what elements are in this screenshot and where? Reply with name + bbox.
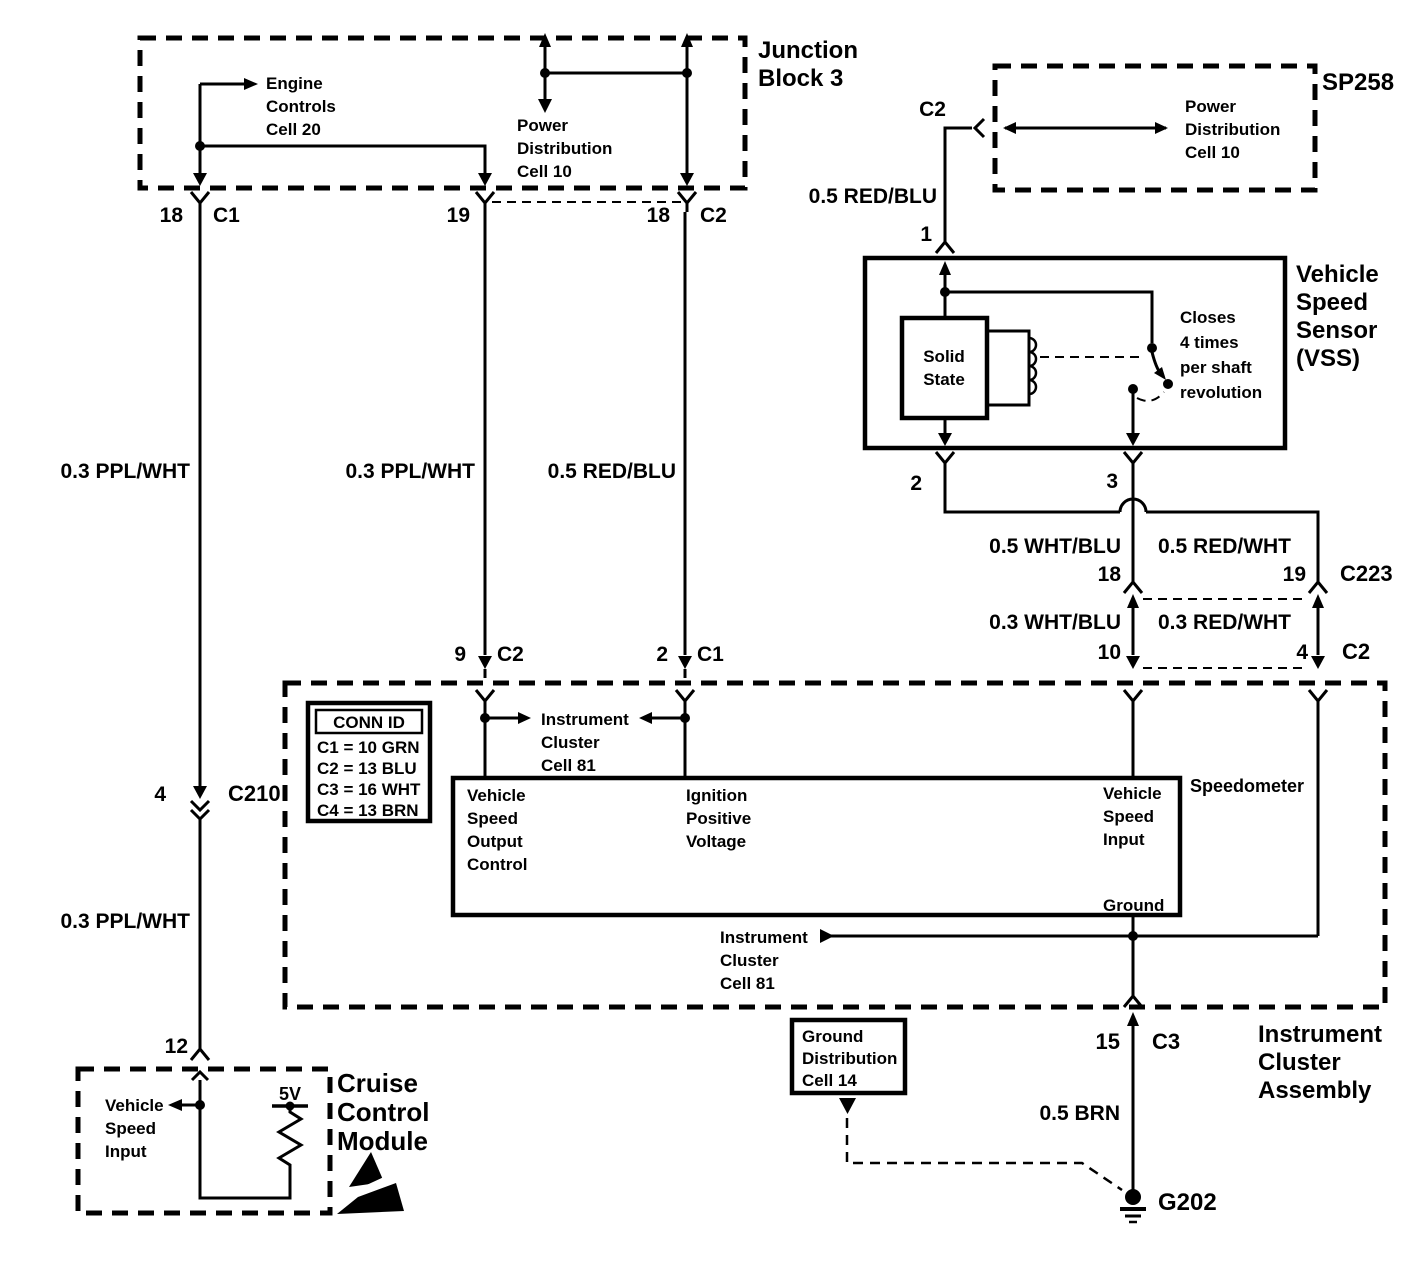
- ground-junction-dot: [1128, 931, 1138, 941]
- switch-arm-arrow-icon: [1154, 367, 1166, 380]
- jb-power-dist-ref-line1: Power: [517, 116, 568, 135]
- pin18-c1-arrow-icon: [193, 173, 207, 186]
- wiring-diagram: Junction Block 3 Engine Controls Cell 20…: [0, 0, 1427, 1275]
- closes-note-line4: revolution: [1180, 383, 1262, 402]
- esd-warning-icon: [337, 1152, 404, 1214]
- cell81-bottom-line1: Instrument: [720, 928, 808, 947]
- cruise-vsi-arrow-icon: [168, 1099, 182, 1111]
- conn-id-row-1: C1 = 10 GRN: [317, 738, 420, 757]
- resistor-icon: [279, 1106, 301, 1172]
- pin4-fork-icon: [1309, 690, 1327, 710]
- speedometer-label: Speedometer: [1190, 776, 1304, 796]
- ground-dist-line3: Cell 14: [802, 1071, 857, 1090]
- sp258-conn-c2-label: C2: [919, 98, 946, 121]
- sp258-power-dist-line2: Distribution: [1185, 120, 1280, 139]
- cruise-title-line1: Cruise: [337, 1068, 418, 1098]
- sp258-splice: SP258 C2 Power Distribution Cell 10 0.5 …: [809, 66, 1394, 253]
- vso-line3: Output: [467, 832, 523, 851]
- sp258-title: SP258: [1322, 69, 1394, 96]
- pin10-fork-icon: [1124, 690, 1142, 710]
- wire-label-wht-blu-03: 0.3 WHT/BLU: [989, 611, 1121, 634]
- pin12-lower-chevron-icon: [192, 1072, 208, 1080]
- engine-controls-arrow-icon: [244, 78, 258, 90]
- cruise-vsi-line3: Input: [105, 1142, 147, 1161]
- c210-arrow-icon: [193, 786, 207, 799]
- wire-label-brn: 0.5 BRN: [1039, 1102, 1120, 1125]
- vss-title-line4: (VSS): [1296, 345, 1360, 372]
- c210-chevrons-icon: [191, 801, 209, 828]
- vsi-line2: Speed: [1103, 807, 1154, 826]
- wire-label-red-blu-mid: 0.5 RED/BLU: [548, 460, 676, 483]
- c210-pin-4-number: 4: [154, 783, 166, 806]
- pin9-fork-icon: [476, 690, 494, 710]
- ign-line1: Ignition: [686, 786, 747, 805]
- vss-pin3-arrow-icon: [1126, 433, 1140, 446]
- ground-dist-arrow-icon: [839, 1098, 856, 1114]
- pin19-arrow-icon: [478, 173, 492, 186]
- sp258-arrow-right-icon: [1155, 122, 1168, 134]
- cluster-pin-2-number: 2: [656, 643, 668, 666]
- closes-note-line1: Closes: [1180, 308, 1236, 327]
- vss-pin1-fork-icon: [936, 242, 954, 253]
- cruise-title-line3: Module: [337, 1126, 428, 1156]
- ground-dist-dashed-path: [847, 1118, 1122, 1190]
- cruise-vsi-line1: Vehicle: [105, 1096, 164, 1115]
- conn-id-row-2: C2 = 13 BLU: [317, 759, 417, 778]
- cluster-box: [285, 683, 1385, 1007]
- ground-dist-line2: Distribution: [802, 1049, 897, 1068]
- cruise-internal-wire: [200, 1080, 290, 1198]
- cell81-top-line2: Cluster: [541, 733, 600, 752]
- jb-power-dist-ref-line2: Distribution: [517, 139, 612, 158]
- ground-dist-line1: Ground: [802, 1027, 863, 1046]
- pin-19-number: 19: [447, 204, 470, 227]
- cluster-title-line3: Assembly: [1258, 1077, 1372, 1104]
- pin2-fork-icon: [676, 690, 694, 710]
- cluster-pin2-arrow-icon: [678, 656, 692, 669]
- c223-pin-19-number: 19: [1283, 563, 1306, 586]
- cell81-bottom-line2: Cluster: [720, 951, 779, 970]
- c2-left-arrow-icon: [1126, 656, 1140, 669]
- junction-block-3-box: [140, 38, 745, 188]
- g202-dot: [1125, 1189, 1141, 1205]
- pin-15-number: 15: [1096, 1029, 1120, 1054]
- c223-right-arrow-icon: [1312, 594, 1324, 608]
- conn-c2-label: C2: [700, 204, 727, 227]
- solid-state-box: [902, 318, 987, 418]
- vss-title-line3: Sensor: [1296, 317, 1377, 344]
- cell81-bottom-line3: Cell 81: [720, 974, 775, 993]
- pin15-arrow-icon: [1127, 1012, 1139, 1026]
- vsi-line3: Input: [1103, 830, 1145, 849]
- cell81-bottom-arrow-icon: [820, 929, 834, 943]
- supply-5v-label: 5V: [279, 1084, 301, 1104]
- vsi-line1: Vehicle: [1103, 784, 1162, 803]
- conn-id-header: CONN ID: [333, 713, 405, 732]
- pin18-c1-fork-icon: [191, 192, 209, 212]
- engine-controls-ref-line2: Controls: [266, 97, 336, 116]
- left-and-middle-wires: 0.3 PPL/WHT 4 C210 0.3 PPL/WHT 12 0.3 PP…: [60, 212, 724, 1060]
- conn-c223-label: C223: [1340, 561, 1393, 586]
- vss-pin2-fork-icon: [936, 452, 954, 472]
- junction-branch-wire: [200, 146, 485, 173]
- vss-pin2-arrow-icon: [938, 433, 952, 446]
- conn-c3-label: C3: [1152, 1029, 1180, 1054]
- pin-stub-wires: [485, 669, 685, 678]
- vss-pin-3-number: 3: [1106, 470, 1118, 493]
- conn-id-table: CONN ID C1 = 10 GRN C2 = 13 BLU C3 = 16 …: [308, 703, 430, 821]
- c2-pin-4-number: 4: [1296, 641, 1308, 664]
- pin-18-c1-number: 18: [160, 204, 184, 227]
- pin19-fork-icon: [476, 192, 494, 212]
- cruise-title-line2: Control: [337, 1097, 429, 1127]
- vso-line1: Vehicle: [467, 786, 526, 805]
- c2-right-arrow-icon: [1311, 656, 1325, 669]
- coil-body: [987, 331, 1029, 405]
- cluster-pin-9-number: 9: [454, 643, 466, 666]
- speedometer-box: [453, 778, 1180, 915]
- vss-pin-2-number: 2: [910, 472, 922, 495]
- jb-power-dist-ref-line3: Cell 10: [517, 162, 572, 181]
- vss-title-line2: Speed: [1296, 289, 1368, 316]
- ground-label: Ground: [1103, 896, 1164, 915]
- wiring-diagram-page: Junction Block 3 Engine Controls Cell 20…: [0, 0, 1427, 1275]
- pin2-run-wire: [945, 472, 1120, 512]
- wire-label-wht-blu-05: 0.5 WHT/BLU: [989, 535, 1121, 558]
- vso-line2: Speed: [467, 809, 518, 828]
- wire-label-red-wht-03: 0.3 RED/WHT: [1158, 611, 1291, 634]
- conn-id-row-4: C4 = 13 BRN: [317, 801, 419, 820]
- vss-title-line1: Vehicle: [1296, 261, 1379, 288]
- cluster-conn-c2-label: C2: [497, 643, 524, 666]
- junction-block-3: Junction Block 3 Engine Controls Cell 20…: [140, 33, 858, 227]
- sp258-wire: [945, 128, 972, 242]
- vss-to-cluster-wires: 0.5 WHT/BLU 0.5 RED/WHT 18 19 C223 0.3 W…: [945, 472, 1393, 669]
- closes-note-line3: per shaft: [1180, 358, 1252, 377]
- junction-block-title-line2: Block 3: [758, 65, 843, 92]
- c223-pin-18-number: 18: [1098, 563, 1122, 586]
- wire-label-ppl-wht-lower: 0.3 PPL/WHT: [60, 910, 190, 933]
- cruise-pin-12-number: 12: [165, 1035, 188, 1058]
- wire-label-ppl-wht-upper: 0.3 PPL/WHT: [60, 460, 190, 483]
- vss-pin3-fork-icon: [1124, 452, 1142, 472]
- cell81-right-arrow-icon: [518, 712, 531, 724]
- cell81-top-line3: Cell 81: [541, 756, 596, 775]
- c223-left-arrow-icon: [1127, 594, 1139, 608]
- engine-controls-ref-line3: Cell 20: [266, 120, 321, 139]
- vss-pin-1-number: 1: [920, 223, 932, 246]
- switch-travel-dashed-arc: [1137, 392, 1164, 401]
- cluster-conn-c1-label: C1: [697, 643, 724, 666]
- cruise-control-module: Vehicle Speed Input 5V Cruise Control Mo…: [78, 1068, 429, 1214]
- cluster-title-line2: Cluster: [1258, 1049, 1341, 1076]
- vss-up-arrow-icon: [939, 261, 951, 275]
- engine-controls-ref-line1: Engine: [266, 74, 323, 93]
- conn-c2-cluster-label: C2: [1342, 639, 1370, 664]
- sp258-conn-fork-icon: [975, 119, 984, 137]
- cluster-title-line1: Instrument: [1258, 1021, 1382, 1048]
- switch-contact-dot: [1163, 379, 1173, 389]
- c223-right-fork-icon: [1309, 582, 1327, 593]
- pin12-fork-icon: [191, 1049, 209, 1060]
- cell81-top-line1: Instrument: [541, 710, 629, 729]
- sp258-arrow-left-icon: [1003, 122, 1016, 134]
- g202-label: G202: [1158, 1189, 1217, 1216]
- solid-state-line1: Solid: [923, 347, 965, 366]
- closes-note-line2: 4 times: [1180, 333, 1239, 352]
- junction-block-title-line1: Junction: [758, 37, 858, 64]
- vso-line4: Control: [467, 855, 527, 874]
- cruise-vsi-line2: Speed: [105, 1119, 156, 1138]
- wire-label-ppl-wht-mid: 0.3 PPL/WHT: [345, 460, 475, 483]
- pin-18-c2-number: 18: [647, 204, 671, 227]
- pin18-c2-arrow-icon: [680, 173, 694, 186]
- ign-line2: Positive: [686, 809, 751, 828]
- cell81-left-arrow-icon: [639, 712, 652, 724]
- conn-c210-label: C210: [228, 781, 281, 806]
- sp258-power-dist-line1: Power: [1185, 97, 1236, 116]
- power-dist-ref-arrow-icon: [538, 99, 552, 113]
- vehicle-speed-sensor: Vehicle Speed Sensor (VSS) Solid State C…: [865, 258, 1379, 495]
- conn-id-row-3: C3 = 16 WHT: [317, 780, 421, 799]
- switch-pivot-dot: [1147, 343, 1157, 353]
- cluster-pin9-arrow-icon: [478, 656, 492, 669]
- c223-left-fork-icon: [1124, 582, 1142, 593]
- wire-label-red-wht-05: 0.5 RED/WHT: [1158, 535, 1291, 558]
- c2-pin-10-number: 10: [1098, 641, 1121, 664]
- ign-line3: Voltage: [686, 832, 746, 851]
- wire-label-red-blu-top: 0.5 RED/BLU: [809, 185, 937, 208]
- solid-state-line2: State: [923, 370, 965, 389]
- sp258-power-dist-line3: Cell 10: [1185, 143, 1240, 162]
- conn-c1-label: C1: [213, 204, 240, 227]
